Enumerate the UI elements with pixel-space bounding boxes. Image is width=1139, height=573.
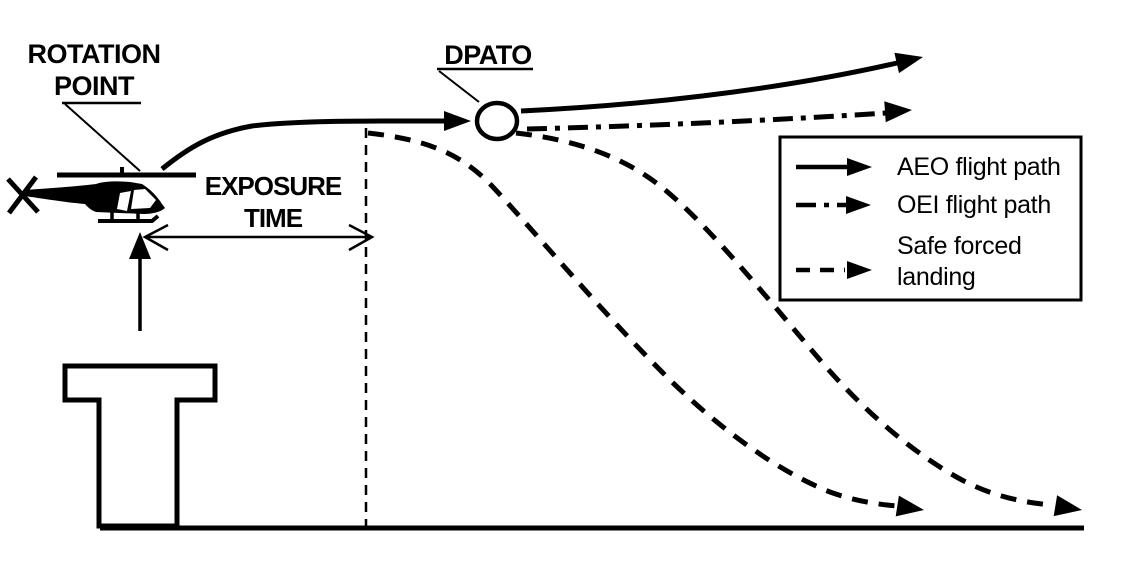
oei-arrowhead — [884, 101, 912, 122]
dpato-circle — [477, 103, 517, 139]
dpato-leader-line — [439, 71, 479, 102]
landing-skid — [98, 216, 158, 221]
rotation-point-label-line1: ROTATION — [18, 38, 170, 70]
legend-item-safe-landing-label: Safe forced landing — [897, 231, 1077, 293]
safe-forced-landing-arrowhead-early — [896, 496, 924, 517]
rotation-point-leader-line — [65, 104, 140, 171]
flight-path-diagram: ROTATION POINT DPATO EXPOSURE TIME AEO f… — [0, 0, 1139, 573]
aeo-arrowhead-end — [894, 53, 923, 73]
safe-forced-landing-arrowhead-late — [1054, 495, 1082, 516]
helicopter-icon — [8, 167, 196, 221]
legend-item-aeo-label: AEO flight path — [897, 152, 1061, 182]
helipad-outline — [65, 366, 215, 526]
oei-flight-path — [527, 113, 886, 129]
dpato-label: DPATO — [432, 40, 544, 70]
exposure-time-label-line1: EXPOSURE — [197, 170, 349, 202]
liftoff-arrow — [129, 232, 151, 331]
rotation-point-label-line2: POINT — [18, 70, 170, 102]
aeo-path-before-dpato — [162, 121, 446, 169]
exposure-time-label: EXPOSURE TIME — [197, 170, 349, 234]
legend-item-oei-label: OEI flight path — [897, 190, 1051, 220]
aeo-arrowhead-at-dpato — [444, 111, 471, 131]
exposure-time-label-line2: TIME — [197, 202, 349, 234]
rotation-point-label: ROTATION POINT — [18, 38, 170, 102]
aeo-path-after-dpato — [521, 63, 897, 111]
